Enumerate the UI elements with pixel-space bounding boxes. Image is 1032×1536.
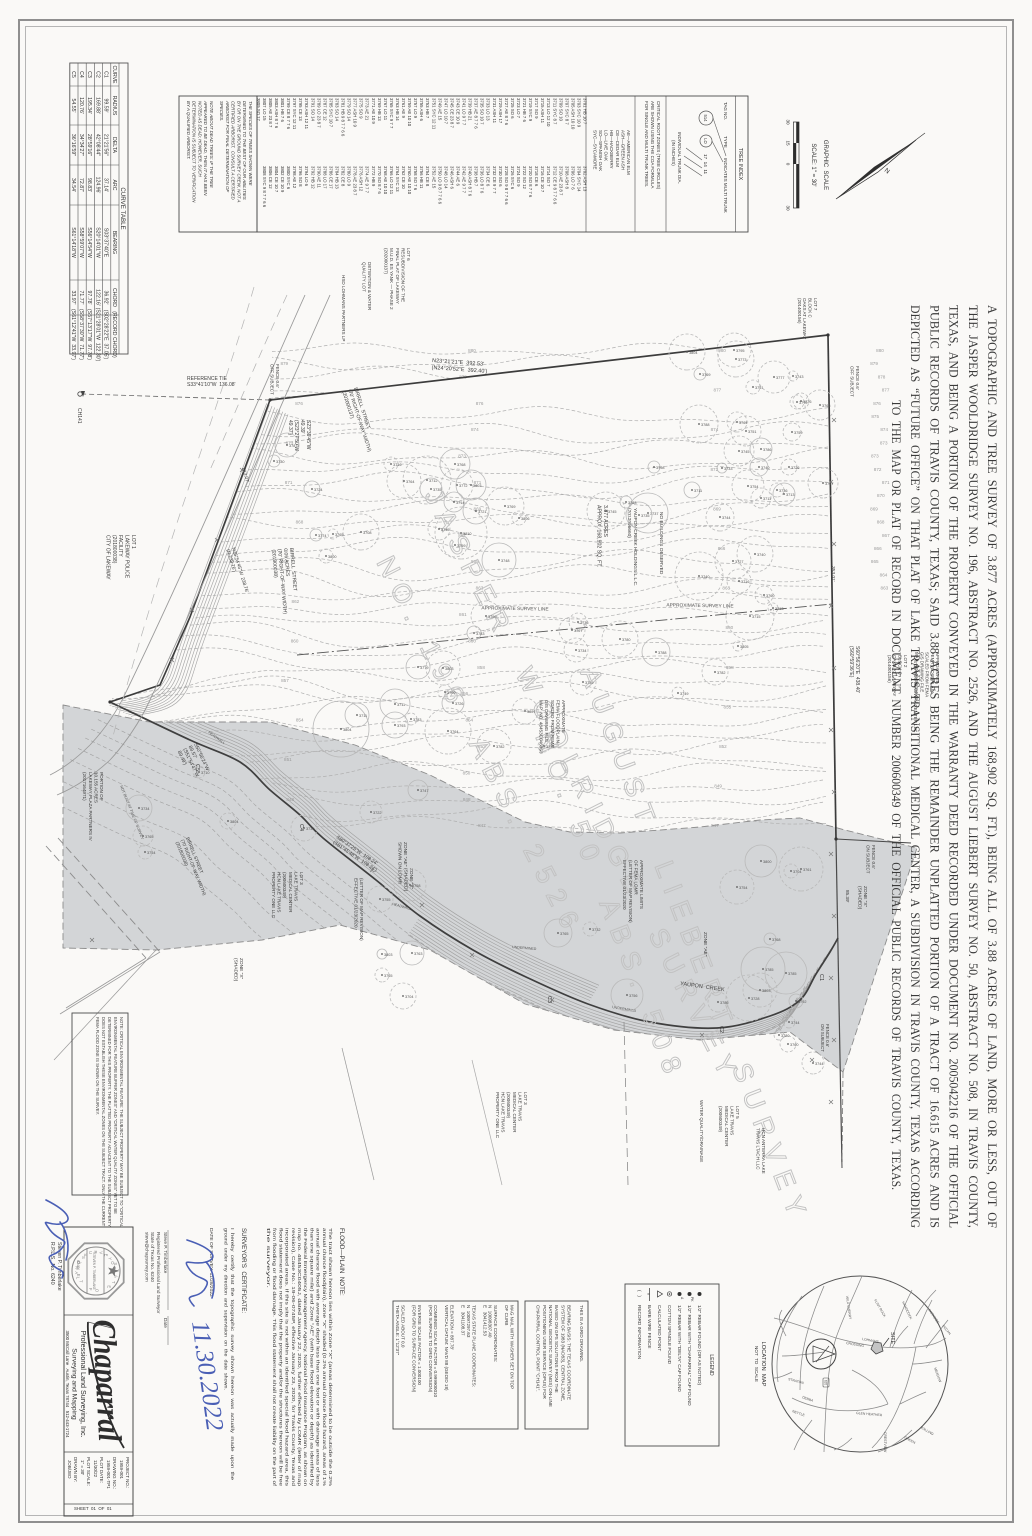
- svg-text:866: 866: [874, 546, 882, 551]
- svg-text:3769 HB 13: 3769 HB 13: [377, 98, 382, 121]
- svg-text:874: 874: [880, 427, 888, 432]
- svg-text:DETERMINED TO THE BEST OF OUR: DETERMINED TO THE BEST OF OUR ABILITIES: [242, 101, 247, 200]
- svg-text:3741 LO 9 7 7: 3741 LO 9 7 7: [462, 98, 467, 126]
- svg-text:C4: C4: [78, 71, 84, 78]
- svg-text:WATER QUALITY/DRAINAGE: WATER QUALITY/DRAINAGE: [699, 1100, 704, 1162]
- svg-text:3735: 3735: [641, 514, 649, 518]
- svg-text:TEXAS STATE PLANE COORDINATES:: TEXAS STATE PLANE COORDINATES:: [471, 1305, 476, 1387]
- svg-text:3500 McCall Lane Austin, Tex: 3500 McCall Lane Austin, Texas 78744 512…: [65, 1331, 70, 1439]
- svg-text:860: 860: [726, 625, 734, 630]
- svg-text:3724: 3724: [314, 488, 322, 492]
- svg-text:3764: 3764: [406, 480, 414, 484]
- svg-text:NOTE: CRITICAL ENVIRONMENTAL F: NOTE: CRITICAL ENVIRONMENTAL FEATURE: TH…: [119, 1017, 124, 1228]
- svg-text:3735 SO 10 7: 3735 SO 10 7: [480, 98, 485, 125]
- svg-text:THE SPECIES OF TREES SHOWN WER: THE SPECIES OF TREES SHOWN WERE: [248, 101, 253, 186]
- svg-text:3806 CE 12: 3806 CE 12: [268, 166, 273, 189]
- svg-text:3782: 3782: [717, 671, 725, 675]
- svg-text:(201400156): (201400156): [797, 298, 802, 324]
- svg-text:BLOCK C: BLOCK C: [808, 298, 813, 319]
- svg-text:3805: 3805: [740, 645, 748, 649]
- svg-text:NATIONAL GEODETIC SURVEY (NGS): NATIONAL GEODETIC SURVEY (NGS) ON-LINE: [548, 1305, 553, 1407]
- svg-text:(S21°28'01"W 122.30'): (S21°28'01"W 122.30'): [94, 308, 100, 362]
- svg-text:847: 847: [711, 823, 719, 828]
- svg-text:3785 SYC 10 7: 3785 SYC 10 7: [328, 98, 333, 128]
- svg-text:CERTIFIED ARBORIST. CONSULT A: CERTIFIED ARBORIST. CONSULT A CERTIFIED: [231, 101, 236, 200]
- svg-text:3724 SO 9: 3724 SO 9: [516, 166, 521, 187]
- svg-text:3703 SYC 10 9: 3703 SYC 10 9: [576, 98, 581, 128]
- svg-text:M.U.D. ES YANK — PHASE 2: M.U.D. ES YANK — PHASE 2: [389, 248, 394, 310]
- svg-text:APPEARED TO BE DEAD, THEN IT H: APPEARED TO BE DEAD, THEN IT HAS BEEN: [203, 100, 208, 196]
- svg-text:Steve P. Timberlake: Steve P. Timberlake: [163, 1232, 168, 1274]
- svg-text:876: 876: [295, 401, 303, 406]
- svg-text:3734: 3734: [141, 807, 149, 811]
- svg-text:APPROXIMATE LIMITS: APPROXIMATE LIMITS: [639, 860, 644, 909]
- svg-text:COMBINED SCALE FACTOR = 0.9999: COMBINED SCALE FACTOR = 0.999900010: [433, 1305, 438, 1398]
- svg-text:3754: 3754: [739, 886, 747, 890]
- svg-text:3786 CE 17: 3786 CE 17: [328, 166, 333, 189]
- svg-text:3782 CE 8: 3782 CE 8: [341, 166, 346, 187]
- svg-text:DEPICTED AS “FUTURE OFFICE”: DEPICTED AS “FUTURE OFFICE” ON THAT PLAT…: [908, 305, 922, 1228]
- svg-text:LOT 7: LOT 7: [813, 298, 818, 311]
- svg-text:QUALITY LOT: QUALITY LOT: [361, 262, 366, 292]
- svg-text:195.34': 195.34': [86, 97, 92, 114]
- svg-text:FINAL PLAT OF LAKEWAY: FINAL PLAT OF LAKEWAY: [395, 248, 400, 304]
- svg-text:3745 CE 23 8 7: 3745 CE 23 8 7: [449, 98, 454, 128]
- svg-text:PLOT SCALE:: PLOT SCALE:: [86, 1457, 91, 1486]
- svg-text:A: A: [74, 1271, 79, 1274]
- svg-text:PORTION OF: PORTION OF: [99, 772, 104, 801]
- svg-text:(IN INCHES): (IN INCHES): [671, 140, 676, 166]
- svg-text:3707 SYC 8 7: 3707 SYC 8 7: [564, 98, 569, 125]
- svg-text:3708 ASH 8: 3708 ASH 8: [564, 166, 569, 190]
- svg-text:GIS DRAWING FILE: GIS DRAWING FILE: [544, 700, 549, 742]
- svg-text:(200600349): (200600349): [718, 1106, 723, 1133]
- svg-text:3793: 3793: [397, 724, 405, 728]
- svg-text:3776 ASH 12: 3776 ASH 12: [359, 166, 364, 192]
- svg-text:866: 866: [718, 546, 726, 551]
- svg-text:Registered Professional Land S: Registered Professional Land Surveyor: [156, 1232, 161, 1314]
- svg-text:FEMA FLOODPLAIN: FEMA FLOODPLAIN: [555, 700, 560, 743]
- svg-text:3772: 3772: [459, 484, 467, 488]
- svg-text:TEXAS, AND BEING A PORTION: TEXAS, AND BEING A PORTION OF THE PROPER…: [947, 305, 961, 1228]
- svg-text:3760: 3760: [790, 1043, 798, 1047]
- svg-text:3761: 3761: [803, 868, 811, 872]
- svg-text:3779 SO 14: 3779 SO 14: [347, 98, 352, 122]
- svg-text:LEGEND: LEGEND: [708, 1354, 714, 1376]
- svg-text:3768 AE 10 10: 3768 AE 10 10: [383, 166, 388, 195]
- svg-text:0: 0: [786, 163, 791, 166]
- svg-text:PROJECT NO.:: PROJECT NO.:: [125, 1457, 130, 1488]
- svg-text:S33°41'10"W 136.08': S33°41'10"W 136.08': [187, 382, 236, 388]
- svg-text:1" = 30': 1" = 30': [80, 1460, 85, 1475]
- svg-text:E 3041108.37: E 3041108.37: [460, 1305, 465, 1336]
- svg-text:30: 30: [786, 205, 791, 211]
- svg-text:(S60°59'36"E): (S60°59'36"E): [848, 646, 854, 678]
- svg-text:3732: 3732: [592, 928, 600, 932]
- svg-text:3757 LO 9: 3757 LO 9: [413, 98, 418, 119]
- svg-text:(S02°28'22"E 37.05'): (S02°28'22"E 37.05'): [103, 310, 109, 360]
- svg-text:GRAPHIC SCALE: GRAPHIC SCALE: [822, 140, 828, 190]
- svg-text:3726: 3726: [791, 466, 799, 470]
- svg-text:C1: C1: [103, 71, 109, 78]
- svg-text:LAKEWAY POLICE: LAKEWAY POLICE: [124, 535, 130, 579]
- svg-text:AE—AMERICAN ELM: AE—AMERICAN ELM: [626, 130, 631, 175]
- svg-text:FENCE 0.6': FENCE 0.6': [825, 1024, 830, 1047]
- svg-text:3766 LO 12 11: 3766 LO 12 11: [389, 166, 394, 195]
- svg-text:879: 879: [280, 361, 288, 366]
- svg-text:21°21'56": 21°21'56": [103, 134, 109, 156]
- svg-text:3765 SYC 9 7 7: 3765 SYC 9 7 7: [389, 98, 394, 129]
- svg-text:ARC: ARC: [111, 180, 117, 191]
- svg-text:71.77': 71.77': [78, 291, 84, 305]
- svg-text:3765: 3765: [145, 835, 153, 839]
- svg-text:SYC—SYCAMORE: SYC—SYCAMORE: [592, 130, 597, 170]
- svg-text:3754 CE 8: 3754 CE 8: [425, 166, 430, 187]
- svg-text:3753 HB 7: 3753 HB 7: [425, 98, 430, 119]
- svg-text:3795: 3795: [736, 349, 744, 353]
- svg-text:3773 AE 21: 3773 AE 21: [365, 98, 370, 121]
- svg-text:3744: 3744: [815, 1062, 823, 1066]
- svg-text:3711: 3711: [763, 497, 771, 501]
- svg-text:3728: 3728: [751, 997, 759, 1001]
- svg-text:BY A QUALIFIED ARBORIST.: BY A QUALIFIED ARBORIST.: [186, 101, 191, 159]
- svg-text:(202000137): (202000137): [384, 248, 389, 275]
- svg-text:3770 SO 8 7 6: 3770 SO 8 7 6: [377, 166, 382, 194]
- svg-text:3716: 3716: [741, 580, 749, 584]
- svg-text:3734 CE 6: 3734 CE 6: [486, 166, 491, 187]
- svg-text:N 10098307.40: N 10098307.40: [488, 1305, 493, 1338]
- svg-text:Chaparral: Chaparral: [85, 1319, 127, 1443]
- svg-text:3785: 3785: [765, 968, 773, 972]
- svg-text:3791 SO 14: 3791 SO 14: [310, 98, 315, 122]
- svg-text:1/2" REBAR WITH "CHAPARRAL" CA: 1/2" REBAR WITH "CHAPARRAL" CAP FOUND: [687, 1305, 692, 1406]
- svg-text:3803: 3803: [384, 953, 392, 957]
- svg-text:FENCE 0.6': FENCE 0.6': [855, 366, 860, 390]
- svg-text:incorporated areas. If this si: incorporated areas. If this site is not …: [285, 1228, 290, 1487]
- svg-text:ASH—GREEN ASH: ASH—GREEN ASH: [620, 130, 625, 170]
- svg-text:849: 849: [714, 784, 722, 789]
- svg-text:3726: 3726: [455, 702, 463, 706]
- svg-text:1/2" REBAR FOUND (OR AS NOTED): 1/2" REBAR FOUND (OR AS NOTED): [697, 1305, 702, 1385]
- svg-text:876: 876: [873, 401, 881, 406]
- svg-text:(2017164971): (2017164971): [82, 772, 87, 801]
- svg-text:ENVIRONMENTAL FEATURE BUFFER Z: ENVIRONMENTAL FEATURE BUFFER ZONES" AND …: [113, 1017, 118, 1214]
- svg-text:3774: 3774: [318, 534, 326, 538]
- svg-text:DETENTION & WATER: DETENTION & WATER: [367, 262, 372, 311]
- svg-text:C1: C1: [818, 974, 824, 981]
- svg-text:FOR SINGLE AND MULTI TRUNK TRE: FOR SINGLE AND MULTI TRUNK TREES.: [644, 101, 649, 187]
- svg-text:HCN LAKE TRAVIS: HCN LAKE TRAVIS: [501, 1092, 506, 1132]
- svg-text:3802 CE 10 9: 3802 CE 10 9: [280, 166, 285, 193]
- svg-text:EFFECTIVE 01/23/2020: EFFECTIVE 01/23/2020: [622, 860, 627, 910]
- svg-text:FACILITY: FACILITY: [117, 535, 123, 557]
- svg-text:3769: 3769: [702, 373, 710, 377]
- svg-text:865: 865: [871, 559, 879, 564]
- svg-text:3735: 3735: [433, 488, 441, 492]
- svg-text:The tract shown hereon lies wi: The tract shown hereon lies within Zone …: [328, 1228, 333, 1486]
- svg-text:LAKE TRAVIS: LAKE TRAVIS: [729, 1106, 734, 1135]
- svg-text:TO THE MAP OR PLAT OF RE: TO THE MAP OR PLAT OF RECORD IN DOCUMENT…: [889, 400, 903, 1190]
- svg-text:3786: 3786: [763, 448, 771, 452]
- svg-text:x: x: [647, 1293, 652, 1295]
- svg-text:CE—CEDAR ELM: CE—CEDAR ELM: [615, 130, 620, 167]
- svg-text:the surveyor.: the surveyor.: [266, 1228, 271, 1288]
- svg-text:3711 SYC 8 7: 3711 SYC 8 7: [552, 98, 557, 125]
- svg-text:3780 LO 9: 3780 LO 9: [347, 166, 352, 187]
- svg-text:3796 SO 8: 3796 SO 8: [298, 166, 303, 187]
- svg-text:3764 SYC 13: 3764 SYC 13: [395, 166, 400, 192]
- svg-text:3728 SO 9 8 7 7 6 6: 3728 SO 9 8 7 7 6 6: [504, 166, 509, 205]
- svg-text:3794 LO 6: 3794 LO 6: [304, 166, 309, 187]
- svg-text:3729 ASH 17: 3729 ASH 17: [498, 98, 503, 124]
- svg-text:CRITICAL ROOT ZONES (TREE CIRC: CRITICAL ROOT ZONES (TREE CIRCLES): [656, 101, 661, 190]
- svg-text:OFF SUBJECT: OFF SUBJECT: [850, 366, 855, 397]
- svg-text:875: 875: [871, 414, 879, 419]
- svg-text:3760 AE 10 10: 3760 AE 10 10: [407, 166, 412, 195]
- svg-text:State of Texas No. 6240: State of Texas No. 6240: [150, 1232, 155, 1282]
- svg-text:the Federal Emergency Manageme: the Federal Emergency Management Agency,…: [303, 1228, 308, 1487]
- svg-text:3777 ASH 10 9: 3777 ASH 10 9: [353, 98, 358, 128]
- svg-text:3714: 3714: [456, 501, 464, 505]
- svg-text:3783: 3783: [413, 718, 421, 722]
- svg-text:620: 620: [824, 1380, 828, 1386]
- svg-text:3751 SYC 12 11: 3751 SYC 12 11: [431, 98, 436, 130]
- svg-text:JOB/JED: JOB/JED: [67, 1460, 72, 1479]
- svg-text:(FOR GRID TO SURFACE CONVERSIO: (FOR GRID TO SURFACE CONVERSION): [411, 1305, 416, 1393]
- svg-text:3721 HB 7 6: 3721 HB 7 6: [522, 98, 527, 122]
- svg-text:(FOR SURFACE TO GRID CONVERSIO: (FOR SURFACE TO GRID CONVERSION): [428, 1305, 433, 1393]
- svg-text:annual chance flood with avera: annual chance flood with average depth l…: [316, 1228, 321, 1487]
- svg-text:ON SUBJECT: ON SUBJECT: [820, 1024, 825, 1052]
- svg-text:LOT 3: LOT 3: [523, 1092, 528, 1105]
- svg-text:15: 15: [786, 140, 791, 146]
- svg-text:SHEET 01 OF 01: SHEET 01 OF 01: [74, 1506, 112, 1511]
- svg-text:HSD LOHMANS PARTNERS LP: HSD LOHMANS PARTNERS LP: [341, 275, 346, 341]
- svg-text:858: 858: [477, 665, 485, 670]
- svg-text:3739 HB 21: 3739 HB 21: [468, 98, 473, 121]
- svg-text:3748 LO 14: 3748 LO 14: [443, 166, 448, 189]
- svg-text:3719 SYC 9: 3719 SYC 9: [528, 98, 533, 122]
- svg-text:3751: 3751: [755, 386, 763, 390]
- svg-text:862: 862: [292, 599, 300, 604]
- svg-text:850: 850: [463, 770, 471, 775]
- svg-text:3711: 3711: [397, 703, 405, 707]
- svg-text:MEDICAL CENTER: MEDICAL CENTER: [288, 872, 293, 913]
- svg-text:OF CURB: OF CURB: [504, 1305, 509, 1325]
- svg-text:C5: C5: [70, 71, 76, 78]
- svg-text:3743: 3743: [795, 375, 803, 379]
- svg-text:APPROXIMATE: APPROXIMATE: [561, 700, 566, 733]
- svg-text:3720 SO 8 7 7 6: 3720 SO 8 7 7 6: [528, 166, 533, 198]
- svg-text:TRAVIS LTACH LLC: TRAVIS LTACH LLC: [755, 1128, 760, 1170]
- svg-text:3793 ASH 12 11: 3793 ASH 12 11: [304, 98, 309, 130]
- svg-text:EFFECTIVE 01/23/2020: EFFECTIVE 01/23/2020: [353, 878, 358, 928]
- svg-text:THE JASPER WOOLDRIDGE SURVE: THE JASPER WOOLDRIDGE SURVEY NO. 196, AB…: [966, 305, 980, 1228]
- svg-text:3706 LO 7 6: 3706 LO 7 6: [570, 166, 575, 190]
- svg-text:3718 CE 6: 3718 CE 6: [534, 166, 539, 187]
- svg-text:3751: 3751: [748, 430, 756, 434]
- svg-text:855: 855: [724, 704, 732, 709]
- svg-text:STEVEN P. TIMBERLAKE: STEVEN P. TIMBERLAKE: [92, 1252, 96, 1289]
- svg-text:3702 ASH 13: 3702 ASH 13: [583, 166, 588, 192]
- svg-text:877: 877: [882, 388, 890, 393]
- svg-text:878: 878: [878, 374, 886, 379]
- svg-text:DETERMINATION IS SUBJECT TO VE: DETERMINATION IS SUBJECT TO VERIFICATION: [192, 101, 197, 203]
- svg-text:S03°37'40"E: S03°37'40"E: [103, 228, 109, 258]
- svg-text:LOT 1: LOT 1: [130, 535, 136, 549]
- svg-text:873: 873: [458, 454, 466, 459]
- svg-text:3715 ASH 11: 3715 ASH 11: [540, 98, 545, 124]
- svg-text:3711: 3711: [694, 489, 702, 493]
- svg-text:3777: 3777: [776, 376, 784, 380]
- svg-text:SYSTEM OF 1983 (NAD83), CENTRA: SYSTEM OF 1983 (NAD83), CENTRAL ZONE,: [560, 1305, 565, 1401]
- svg-text:3722: 3722: [373, 811, 381, 815]
- svg-text:S60°56'20"E 438.40': S60°56'20"E 438.40': [854, 646, 860, 693]
- svg-text:49.39': 49.39': [299, 420, 305, 434]
- svg-text:3727: 3727: [735, 560, 743, 564]
- svg-text:3717 SO 9: 3717 SO 9: [534, 98, 539, 119]
- svg-text:874: 874: [471, 427, 479, 432]
- svg-text:S23°30'45"W: S23°30'45"W: [305, 420, 311, 450]
- svg-text:RESUBDIVISION OF THE: RESUBDIVISION OF THE: [400, 248, 405, 302]
- svg-text:3778 AE 23 8 7: 3778 AE 23 8 7: [353, 166, 358, 196]
- svg-text:CITY OF LAKEWAY: CITY OF LAKEWAY: [104, 535, 110, 580]
- svg-text:3755 ASH 6: 3755 ASH 6: [419, 98, 424, 122]
- svg-text:124.96': 124.96': [94, 177, 100, 194]
- svg-text:3792: 3792: [798, 1000, 806, 1004]
- svg-text:POSITIONING USER SERVICE (OPUS: POSITIONING USER SERVICE (OPUS) FOR: [542, 1305, 547, 1400]
- svg-text:879: 879: [870, 361, 878, 366]
- svg-text:36.92': 36.92': [103, 291, 109, 305]
- svg-text:3806: 3806: [521, 517, 529, 521]
- svg-text:3727 AE 8 7 6: 3727 AE 8 7 6: [504, 98, 509, 126]
- svg-text:Y: Y: [107, 1257, 112, 1260]
- svg-text:3788: 3788: [701, 423, 709, 427]
- svg-text:SPECIES.: SPECIES.: [219, 101, 224, 121]
- svg-text:122.16': 122.16': [94, 289, 100, 306]
- svg-text:annual chance floodplain), Zon: annual chance floodplain), Zone "X" shad…: [322, 1228, 327, 1486]
- svg-text:THETA ANGLE: 1°12'37": THETA ANGLE: 1°12'37": [395, 1305, 400, 1356]
- svg-text:FEMA FLOOD ZONE IS SHOWN ON TH: FEMA FLOOD ZONE IS SHOWN ON THE SURVEY.: [95, 1017, 100, 1115]
- svg-text:ON SUBJECT: ON SUBJECT: [866, 845, 871, 874]
- svg-text:3730: 3730: [276, 460, 284, 464]
- svg-text:3750 LO 9 8 7 7 6 6: 3750 LO 9 8 7 7 6 6: [437, 166, 442, 205]
- svg-text:3704: 3704: [405, 995, 413, 999]
- svg-text:868: 868: [877, 520, 885, 525]
- svg-text:DOES NOT ESTABLISH THESE ENVIR: DOES NOT ESTABLISH THESE ENVIRONMENTAL Z…: [101, 1017, 106, 1227]
- svg-text:3736: 3736: [580, 621, 588, 625]
- svg-text:3771 AE 10 9: 3771 AE 10 9: [371, 98, 376, 124]
- svg-text:CURVE TABLE: CURVE TABLE: [119, 187, 126, 229]
- svg-text:3760: 3760: [447, 691, 455, 695]
- svg-text:85.39': 85.39': [845, 890, 850, 902]
- svg-text:C2: C2: [94, 71, 100, 78]
- svg-text:FLOOD—PLAIN NOTE:: FLOOD—PLAIN NOTE:: [338, 1228, 345, 1296]
- svg-text:SITE: SITE: [889, 1332, 895, 1345]
- svg-text:ARE SHOWN USING THE COA FORMUL: ARE SHOWN USING THE COA FORMULA: [650, 101, 655, 188]
- svg-text:APPROX. 168,902 SQ. FT.: APPROX. 168,902 SQ. FT.: [596, 505, 602, 567]
- svg-text:S56°14'54"W: S56°14'54"W: [86, 227, 92, 258]
- svg-text:S58°59'07"W: S58°59'07"W: [78, 227, 84, 258]
- svg-text:3733: 3733: [724, 467, 732, 471]
- svg-text:3749 AE 15: 3749 AE 15: [437, 98, 442, 121]
- svg-text:72.87': 72.87': [78, 178, 84, 192]
- svg-text:MEDICAL CENTER: MEDICAL CENTER: [512, 1092, 517, 1133]
- svg-text:3709 SO 10: 3709 SO 10: [558, 98, 563, 122]
- svg-text:(LETTER OF MAP REVISION): (LETTER OF MAP REVISION): [359, 878, 364, 941]
- svg-text:SO—SPANISH OAK: SO—SPANISH OAK: [598, 130, 603, 171]
- svg-text:3783: 3783: [628, 501, 636, 505]
- svg-text:3758 SO 7 6: 3758 SO 7 6: [413, 166, 418, 191]
- svg-text:3780: 3780: [622, 638, 630, 642]
- svg-text:3804: 3804: [689, 351, 697, 355]
- svg-text:852: 852: [719, 744, 727, 749]
- svg-text:3745: 3745: [608, 510, 616, 514]
- svg-text:3800 SYC 6: 3800 SYC 6: [286, 166, 291, 190]
- svg-text:3798: 3798: [656, 466, 664, 470]
- svg-text:3783 SO 14: 3783 SO 14: [334, 98, 339, 122]
- svg-text:3804: 3804: [230, 820, 238, 824]
- svg-text:3788: 3788: [658, 651, 666, 655]
- svg-text:LO: LO: [703, 138, 708, 144]
- svg-text:3809 SO 17: 3809 SO 17: [256, 98, 261, 122]
- svg-text:3786: 3786: [720, 1001, 728, 1005]
- svg-text:3787: 3787: [289, 444, 297, 448]
- svg-text:TREE INDEX: TREE INDEX: [737, 148, 743, 181]
- svg-text:3721: 3721: [478, 510, 486, 514]
- svg-text:FENCE 0.6': FENCE 0.6': [275, 364, 280, 388]
- svg-text:RADIUS: RADIUS: [111, 96, 117, 116]
- svg-text:E 3041412.53: E 3041412.53: [482, 1305, 487, 1336]
- svg-text:3715: 3715: [752, 615, 760, 619]
- svg-text:3744 AE 6: 3744 AE 6: [455, 166, 460, 186]
- svg-text:LAKE TRAVIS: LAKE TRAVIS: [517, 1092, 522, 1121]
- svg-text:(200600349): (200600349): [506, 1092, 511, 1119]
- svg-text:3747: 3747: [420, 789, 428, 793]
- svg-text:3742 AE 9 7 7: 3742 AE 9 7 7: [462, 166, 467, 194]
- svg-text:(S58°37'30"W 71.77'): (S58°37'30"W 71.77'): [78, 309, 84, 360]
- svg-text:861: 861: [459, 612, 467, 617]
- svg-text:3743 CE 10 9: 3743 CE 10 9: [455, 98, 460, 125]
- svg-text:3711: 3711: [359, 714, 367, 718]
- svg-text:3759 AE 10 10: 3759 AE 10 10: [407, 98, 412, 127]
- svg-text:3733 LO 13: 3733 LO 13: [486, 98, 491, 121]
- svg-text:877: 877: [714, 388, 722, 393]
- svg-text:3740: 3740: [701, 575, 709, 579]
- svg-text:3779: 3779: [420, 666, 428, 670]
- svg-text:SURFACE COORDINATES:: SURFACE COORDINATES:: [493, 1305, 498, 1362]
- svg-text:3763: 3763: [414, 952, 422, 956]
- svg-text:SCALE: 1" = 30': SCALE: 1" = 30': [810, 143, 816, 186]
- svg-text:3745: 3745: [441, 528, 449, 532]
- svg-text:DRAWING NO.:: DRAWING NO.:: [112, 1457, 117, 1489]
- svg-text:3798 AE 12: 3798 AE 12: [292, 166, 297, 189]
- svg-text:3803: 3803: [445, 667, 453, 671]
- svg-text:C4: C4: [298, 824, 304, 831]
- svg-text:3740: 3740: [757, 553, 765, 557]
- svg-text:3764: 3764: [739, 421, 747, 425]
- svg-text:NOTE ABOUT DEAD TREES: IF THE: NOTE ABOUT DEAD TREES: IF THE TREE: [209, 101, 214, 188]
- svg-text:LOT 6: LOT 6: [406, 248, 411, 261]
- svg-text:854: 854: [296, 718, 304, 723]
- svg-text:3712 CE 9 8 7 7 6 6: 3712 CE 9 8 7 7 6 6: [552, 166, 557, 205]
- svg-text:3788 LO 17: 3788 LO 17: [322, 166, 327, 189]
- svg-text:3713: 3713: [775, 607, 783, 611]
- svg-text:ELEVATION = 887.78': ELEVATION = 887.78': [450, 1305, 455, 1350]
- svg-text:DELTA: DELTA: [111, 137, 117, 153]
- svg-text:860: 860: [468, 638, 476, 643]
- svg-text:3756: 3756: [629, 994, 637, 998]
